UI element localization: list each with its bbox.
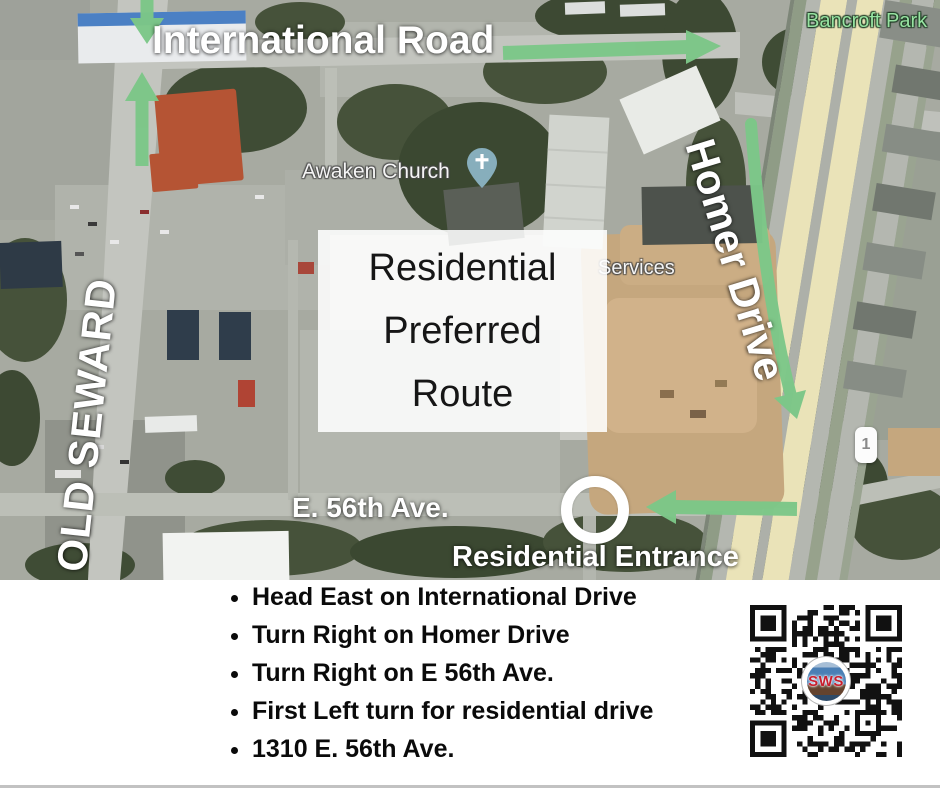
directions-footer: Head East on International Drive Turn Ri… xyxy=(0,580,940,788)
route-title-line: Route xyxy=(412,363,513,426)
direction-item: Turn Right on Homer Drive xyxy=(252,620,653,650)
sws-logo: SWS xyxy=(802,657,850,705)
route-title-line: Preferred xyxy=(383,300,541,363)
directions-list: Head East on International Drive Turn Ri… xyxy=(224,582,653,772)
aerial-map: Bancroft Park Awaken Church Services 1 xyxy=(0,0,940,580)
sws-logo-emblem: SWS xyxy=(807,662,846,701)
route-title-line: Residential xyxy=(369,237,557,300)
route-title-box: Residential Preferred Route xyxy=(318,230,607,432)
entrance-circle-marker xyxy=(561,476,629,544)
qr-code: SWS xyxy=(750,605,902,757)
direction-item: Turn Right on E 56th Ave. xyxy=(252,658,653,688)
sws-logo-text: SWS xyxy=(808,673,844,690)
direction-item: 1310 E. 56th Ave. xyxy=(252,734,653,764)
direction-item: First Left turn for residential drive xyxy=(252,696,653,726)
direction-item: Head East on International Drive xyxy=(252,582,653,612)
route-map-flyer: Bancroft Park Awaken Church Services 1 xyxy=(0,0,940,788)
